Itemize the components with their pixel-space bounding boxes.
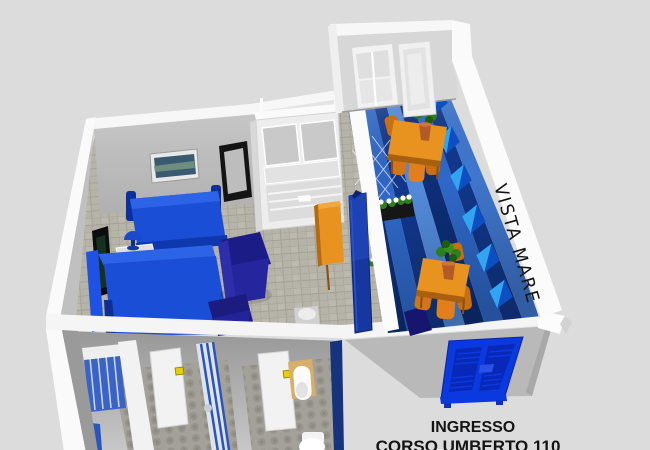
terrace-window xyxy=(352,44,398,108)
apartment-3d-render: VISTA MARE INGRESSO CORSO UMBERTO 110 xyxy=(0,0,650,450)
drawer-handle xyxy=(298,195,311,202)
bathrooms xyxy=(46,330,344,450)
shower-head xyxy=(204,404,212,412)
terrace-glass-door xyxy=(398,41,436,117)
door-handle-yellow xyxy=(175,367,184,375)
table-top xyxy=(388,120,447,161)
floor-plan-image: VISTA MARE INGRESSO CORSO UMBERTO 110 xyxy=(0,0,650,450)
address-label: CORSO UMBERTO 110 xyxy=(376,437,561,450)
door-handle-panel xyxy=(479,364,494,373)
wardrobe-door-right xyxy=(300,120,338,162)
wardrobe-door-left xyxy=(262,124,300,166)
wall-mirror xyxy=(224,148,247,194)
ingresso-label: INGRESSO xyxy=(431,419,515,436)
